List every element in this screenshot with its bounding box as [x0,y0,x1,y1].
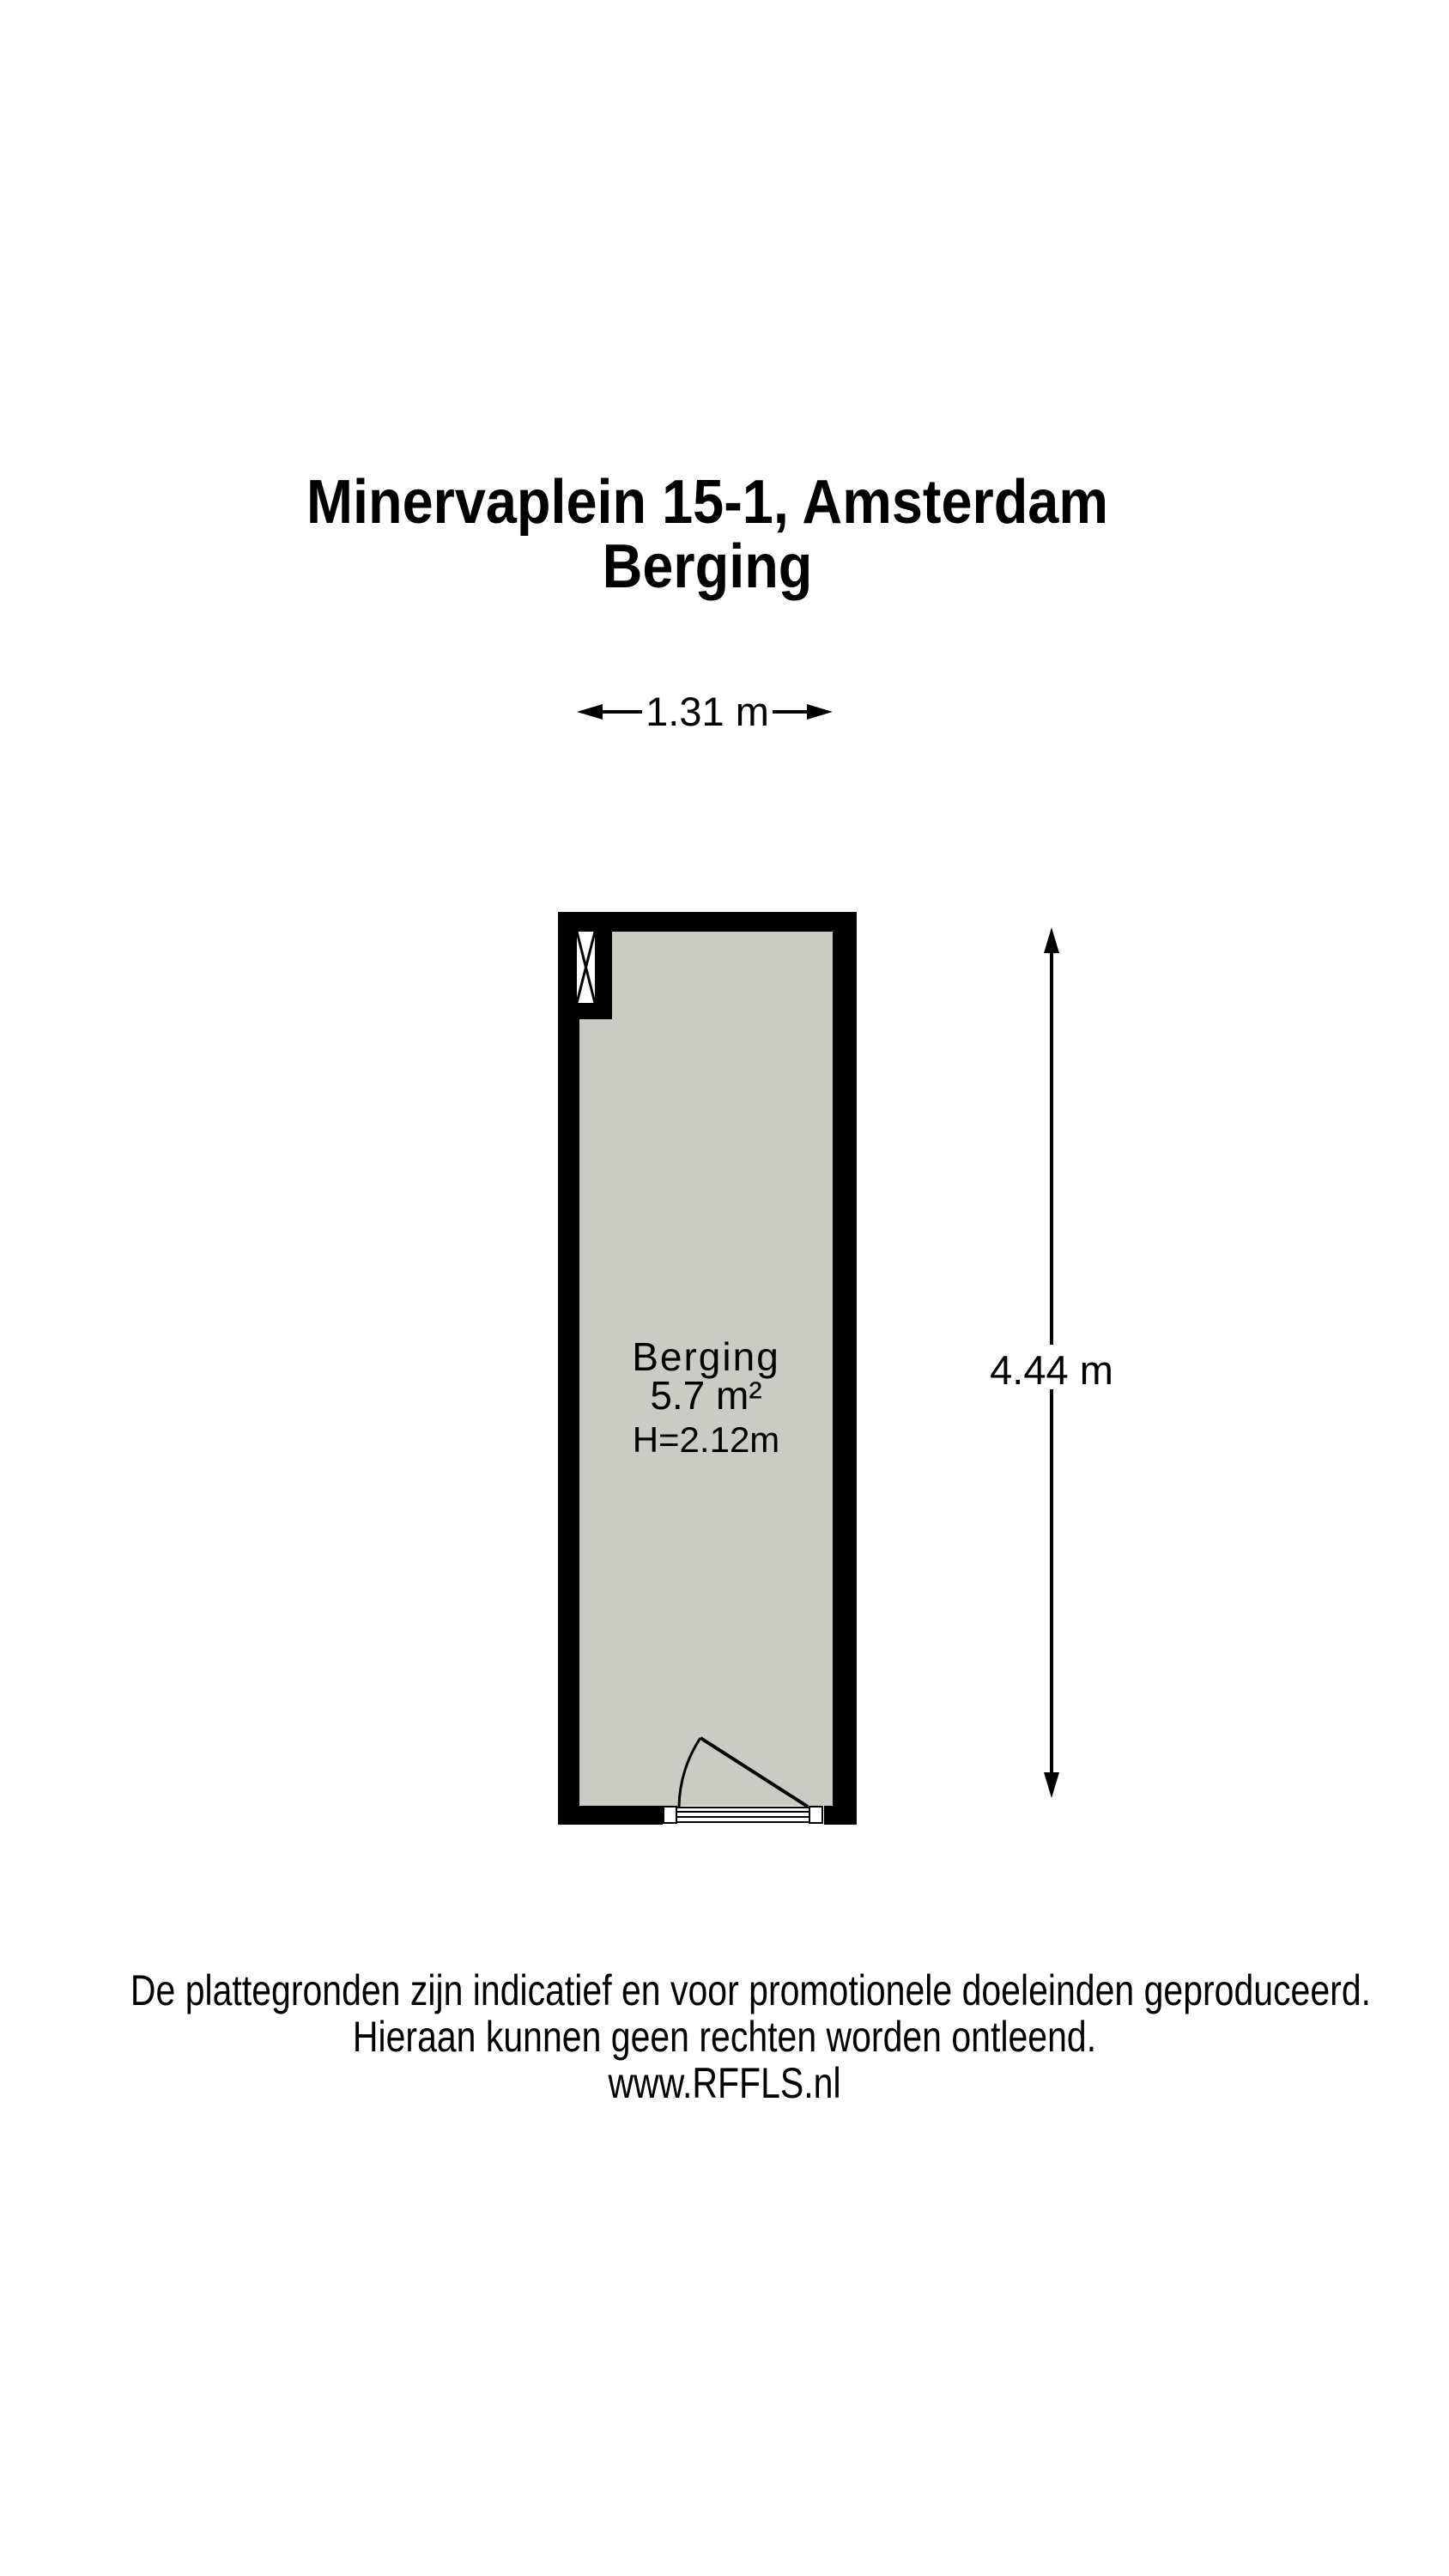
arrow-down-icon [1044,1772,1059,1798]
footer-disclaimer: De plattegronden zijn indicatief en voor… [130,1967,1319,2106]
arrow-up-icon [1044,927,1059,953]
window-symbol [558,912,612,1019]
door-post-right [809,1807,822,1823]
footer-line-1: De plattegronden zijn indicatief en voor… [130,1967,1319,2014]
width-dimension-label: 1.31 m [0,690,1415,733]
floorplan-page: Minervaplein 15-1, Amsterdam Berging [0,0,1449,2576]
footer-website: www.RFFLS.nl [130,2060,1319,2106]
door-post-left [664,1807,676,1823]
room-ceiling-height-label: H=2.12m [0,1419,1412,1461]
room-name-label: Berging [0,1335,1412,1378]
door-opening [663,1806,824,1825]
room-area-label: 5.7 m² [0,1374,1412,1417]
floorplan-drawing [0,0,1449,2576]
footer-line-2: Hieraan kunnen geen rechten worden ontle… [130,2014,1319,2060]
